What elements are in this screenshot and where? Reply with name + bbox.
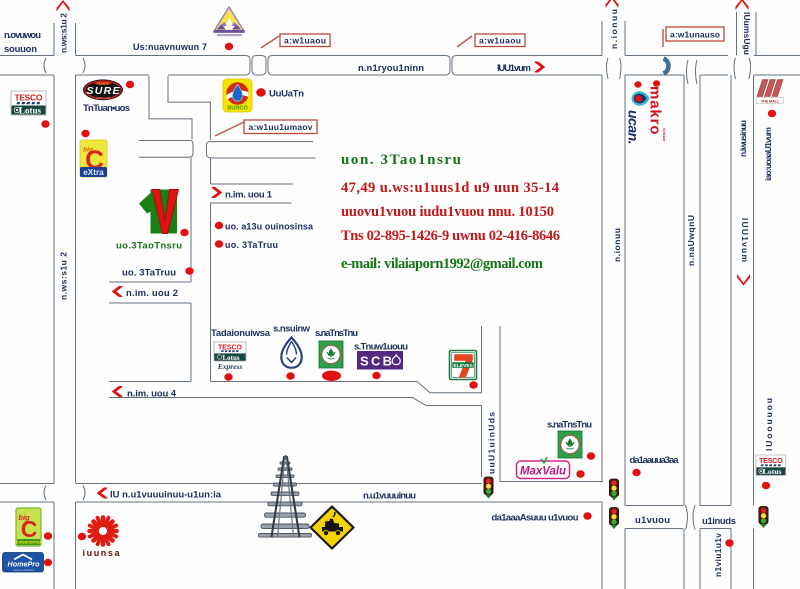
svg-text:s.Tnuw1uouu: s.Tnuw1uouu xyxy=(354,342,408,353)
svg-text:SUPERCENTER: SUPERCENTER xyxy=(15,541,43,545)
svg-text:lU n.u1vuuuinuu-u1un:ia: lU n.u1vuuuinuu-u1un:ia xyxy=(110,490,222,501)
svg-text:uo.3TaoTnsru: uo.3TaoTnsru xyxy=(116,241,182,252)
svg-text:n.im. uou 1: n.im. uou 1 xyxy=(225,190,273,201)
svg-text:n.naUwqnU: n.naUwqnU xyxy=(686,215,696,266)
svg-text:uuU1uinUds: uuU1uinUds xyxy=(487,412,497,474)
svg-text:n.ionuu: n.ionuu xyxy=(612,228,622,262)
svg-text:Tns 02-895-1426-9 uwnu 02-416-: Tns 02-895-1426-9 uwnu 02-416-8646 xyxy=(341,228,560,244)
svg-text:lUoouuou: lUoouuou xyxy=(764,398,774,451)
svg-text:SCB: SCB xyxy=(360,354,392,369)
svg-text:Us:nuavnuwun 7: Us:nuavnuwun 7 xyxy=(133,42,207,52)
svg-text:lUU1vum: lUU1vum xyxy=(740,218,750,262)
svg-text:n.u1vuuuinuu: n.u1vuuuinuu xyxy=(363,491,416,502)
svg-text:n.ws:s1u 2: n.ws:s1u 2 xyxy=(59,13,69,53)
svg-text:uo. a13u ouinosinsa: uo. a13u ouinosinsa xyxy=(225,222,314,232)
svg-text:C: C xyxy=(21,516,38,542)
svg-text:HomePro: HomePro xyxy=(8,560,41,569)
svg-text:n.ws:s1u 2: n.ws:s1u 2 xyxy=(59,252,69,300)
svg-text:THE MALL: THE MALL xyxy=(761,99,780,103)
svg-text:da1aauua3aa: da1aauua3aa xyxy=(630,455,680,466)
svg-text:n.im. uou 2: n.im. uou 2 xyxy=(126,288,178,299)
svg-text:uo. 3TaTruu: uo. 3TaTruu xyxy=(122,268,176,279)
svg-text:n1viu1u1v: n1viu1u1v xyxy=(713,533,723,577)
svg-text:a:w1unauso: a:w1unauso xyxy=(670,30,720,40)
svg-text:u1vuou: u1vuou xyxy=(635,515,670,526)
svg-text:lUU1vum: lUU1vum xyxy=(497,63,531,74)
svg-text:MaxValu: MaxValu xyxy=(520,465,566,477)
svg-text:o1n1sao: o1n1sao xyxy=(662,128,666,141)
svg-text:lUumsUgu: lUumsUgu xyxy=(742,12,752,55)
svg-text:n.n1ryou1ninn: n.n1ryou1ninn xyxy=(358,63,424,74)
svg-text:s.nsuinw: s.nsuinw xyxy=(273,324,311,335)
svg-text:uo. 3TaTruu: uo. 3TaTruu xyxy=(225,240,278,250)
svg-text:a:w1uaou: a:w1uaou xyxy=(479,36,521,46)
svg-text:iuunsa: iuunsa xyxy=(83,548,121,558)
svg-text:Tadaionuiwsa: Tadaionuiwsa xyxy=(211,328,271,339)
svg-text:ELEVEn: ELEVEn xyxy=(454,363,473,369)
svg-text:Home is Ambellra: Home is Ambellra xyxy=(13,568,34,572)
svg-text:s.naTnsTnu: s.naTnsTnu xyxy=(547,420,592,431)
svg-text:uuovu1vuou iudu1vuou nnu. 1015: uuovu1vuou iudu1vuou nnu. 10150 xyxy=(341,204,554,220)
svg-text:n.ovuwou: n.ovuwou xyxy=(4,30,41,41)
svg-text:UuUaTn: UuUaTn xyxy=(269,89,304,100)
svg-text:n.iwusinuu: n.iwusinuu xyxy=(738,120,748,157)
svg-text:eXtra: eXtra xyxy=(83,168,104,177)
svg-text:n.im. uou 4: n.im. uou 4 xyxy=(127,389,177,400)
svg-text:47,49 u.ws:u1uus1d u9 uun 35-1: 47,49 u.ws:u1uus1d u9 uun 35-14 xyxy=(341,180,559,196)
svg-text:BURCO: BURCO xyxy=(227,106,248,112)
svg-text:s.naTnsTnu: s.naTnsTnu xyxy=(315,328,358,339)
svg-text:a:w1uaou: a:w1uaou xyxy=(284,36,326,46)
svg-text:Express: Express xyxy=(217,362,243,371)
svg-text:TnTuan•uos: TnTuan•uos xyxy=(83,103,130,114)
svg-text:e-mail: vilaiaporn1992@gmail.c: e-mail: vilaiaporn1992@gmail.com xyxy=(341,256,543,272)
svg-text:a:w1uu1umaov: a:w1uu1umaov xyxy=(249,122,313,132)
svg-text:ucan.: ucan. xyxy=(626,110,642,144)
svg-text:u1inuds: u1inuds xyxy=(702,516,736,527)
svg-text:souuon: souuon xyxy=(4,44,37,55)
svg-text:Lotus: Lotus xyxy=(222,354,239,362)
svg-text:da1aaaAsuuu u1vuou: da1aaaAsuuu u1vuou xyxy=(492,513,579,524)
svg-text:iao:uoaaU1vum: iao:uoaaU1vum xyxy=(763,127,773,181)
svg-text:USED CAR: USED CAR xyxy=(96,96,110,100)
svg-text:makro: makro xyxy=(647,86,664,134)
